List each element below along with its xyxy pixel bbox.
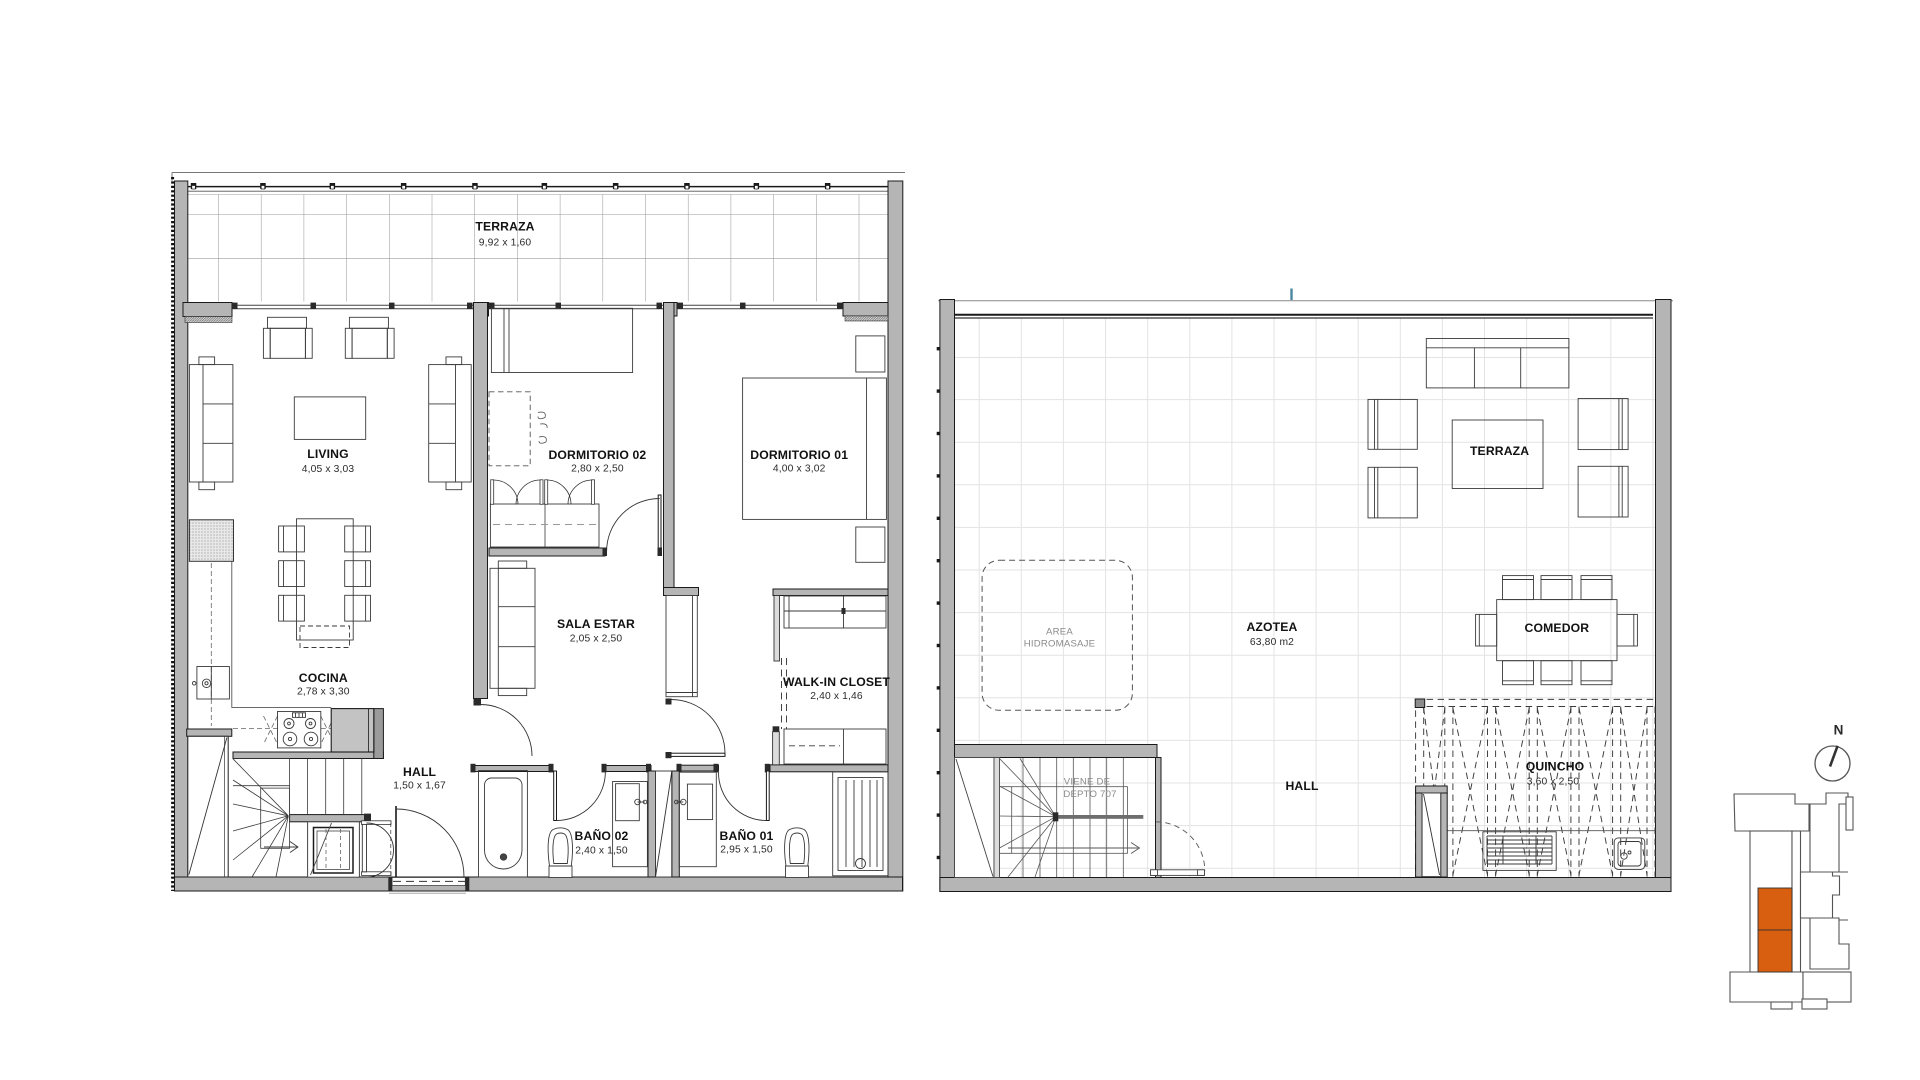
svg-text:DEPTO 707: DEPTO 707 <box>1063 789 1116 800</box>
svg-text:HALL: HALL <box>1285 779 1318 793</box>
svg-text:4,00 x 3,02: 4,00 x 3,02 <box>773 464 826 475</box>
svg-text:WALK-IN CLOSET: WALK-IN CLOSET <box>783 675 890 689</box>
svg-text:63,80 m2: 63,80 m2 <box>1250 637 1294 648</box>
svg-text:4,05 x 3,03: 4,05 x 3,03 <box>302 464 355 475</box>
svg-text:COMEDOR: COMEDOR <box>1525 621 1590 635</box>
svg-text:COCINA: COCINA <box>299 671 348 685</box>
svg-text:AREA: AREA <box>1046 627 1073 638</box>
svg-text:DORMITORIO 02: DORMITORIO 02 <box>548 448 646 462</box>
svg-text:TERRAZA: TERRAZA <box>475 220 534 234</box>
svg-text:2,40 x 1,46: 2,40 x 1,46 <box>810 691 863 702</box>
svg-text:BAÑO 02: BAÑO 02 <box>575 828 629 843</box>
svg-text:LIVING: LIVING <box>307 447 349 461</box>
svg-text:3,60 x 2,50: 3,60 x 2,50 <box>1527 777 1580 788</box>
svg-text:BAÑO 01: BAÑO 01 <box>720 828 774 843</box>
svg-text:9,92 x 1,60: 9,92 x 1,60 <box>479 238 532 249</box>
svg-text:AZOTEA: AZOTEA <box>1246 620 1297 634</box>
svg-text:VIENE DE: VIENE DE <box>1064 777 1110 788</box>
svg-text:N: N <box>1834 723 1844 738</box>
svg-text:HALL: HALL <box>403 765 436 779</box>
svg-text:QUINCHO: QUINCHO <box>1526 760 1585 774</box>
svg-text:TERRAZA: TERRAZA <box>1470 444 1529 458</box>
svg-text:SALA ESTAR: SALA ESTAR <box>557 617 635 631</box>
svg-text:2,40 x 1,50: 2,40 x 1,50 <box>575 846 628 857</box>
svg-text:2,80 x 2,50: 2,80 x 2,50 <box>571 464 624 475</box>
svg-text:2,05 x 2,50: 2,05 x 2,50 <box>570 634 623 645</box>
svg-text:HIDROMASAJE: HIDROMASAJE <box>1024 639 1096 650</box>
svg-text:2,78 x 3,30: 2,78 x 3,30 <box>297 687 350 698</box>
svg-text:DORMITORIO 01: DORMITORIO 01 <box>750 448 848 462</box>
svg-text:2,95 x 1,50: 2,95 x 1,50 <box>720 845 773 856</box>
svg-text:1,50 x 1,67: 1,50 x 1,67 <box>393 781 446 792</box>
